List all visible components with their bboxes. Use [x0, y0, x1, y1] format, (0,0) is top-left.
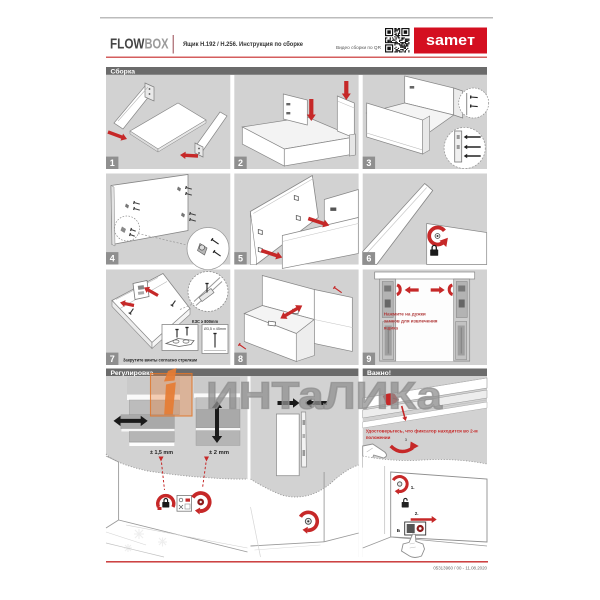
svg-text:Нажмите на дужки: Нажмите на дужки [384, 312, 426, 317]
svg-text:± 1,5 mm: ± 1,5 mm [150, 450, 174, 456]
svg-text:sameт: sameт [426, 33, 475, 49]
svg-text:ящика: ящика [384, 326, 399, 331]
svg-text:4: 4 [110, 253, 115, 263]
svg-text:7: 7 [110, 354, 115, 364]
svg-text:BOX: BOX [145, 37, 169, 53]
svg-text:Ø3,5 x 45mm: Ø3,5 x 45mm [204, 327, 226, 331]
svg-text:ИНТаЛИКа: ИНТаЛИКа [206, 376, 443, 418]
svg-text:Удостоверьтесь, что фиксатор н: Удостоверьтесь, что фиксатор находится в… [366, 428, 479, 434]
svg-text:FLOW: FLOW [110, 37, 145, 53]
svg-text:Регулировка: Регулировка [111, 370, 154, 377]
svg-text:± 2 mm: ± 2 mm [209, 450, 230, 456]
svg-text:9: 9 [366, 354, 371, 364]
svg-text:2: 2 [238, 158, 243, 168]
svg-text:положении: положении [366, 435, 391, 440]
svg-text:3: 3 [366, 158, 371, 168]
svg-text:05313960 / 00 - 11.08.2020: 05313960 / 00 - 11.08.2020 [433, 566, 487, 571]
svg-text:5: 5 [238, 253, 243, 263]
svg-text:2.: 2. [415, 511, 419, 516]
svg-text:Видео сборки по QR: Видео сборки по QR [336, 45, 382, 50]
svg-text:1.: 1. [411, 485, 415, 490]
svg-text:замков для извлечения: замков для извлечения [384, 319, 438, 324]
svg-text:Закрутите винты согласно стрел: Закрутите винты согласно стрелкам [123, 358, 197, 364]
svg-text:Ящик H.192 / H.256. Инструкция: Ящик H.192 / H.256. Инструкция по сборке [183, 40, 303, 48]
svg-text:КЗС ≥ 800mm: КЗС ≥ 800mm [192, 319, 218, 324]
svg-text:6: 6 [366, 253, 371, 263]
svg-text:8: 8 [238, 354, 243, 364]
svg-text:Сборка: Сборка [111, 67, 136, 75]
svg-text:1: 1 [110, 158, 115, 168]
